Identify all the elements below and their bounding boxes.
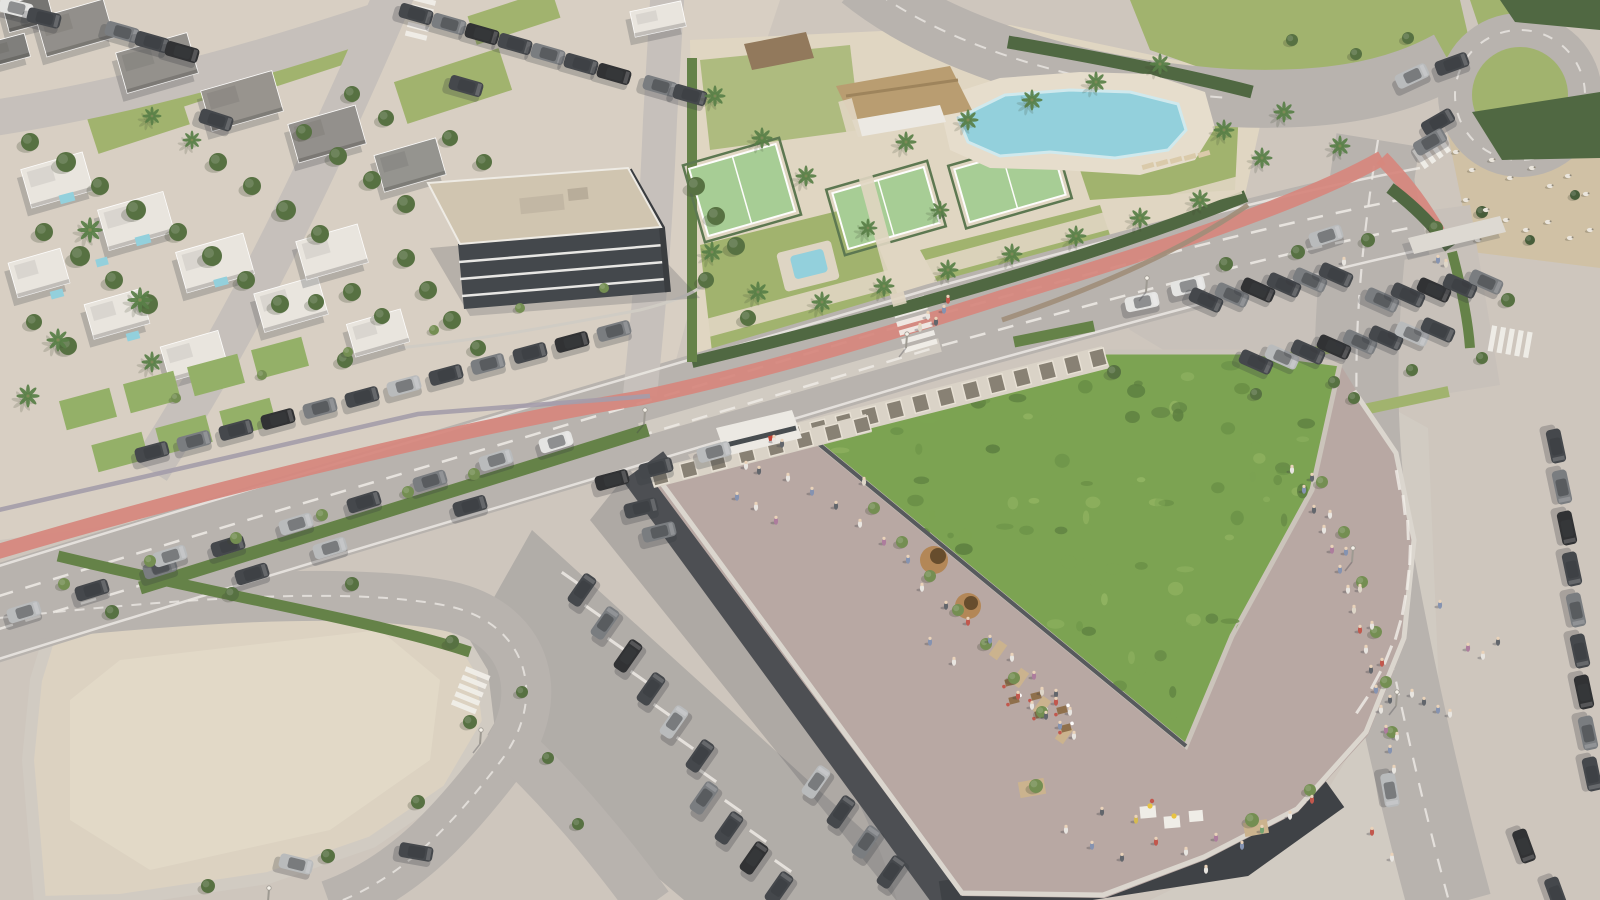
aerial-architectural-rendering: [0, 0, 1600, 900]
layer-warm-light-overlay: [0, 0, 1600, 900]
render-canvas: [0, 0, 1600, 900]
